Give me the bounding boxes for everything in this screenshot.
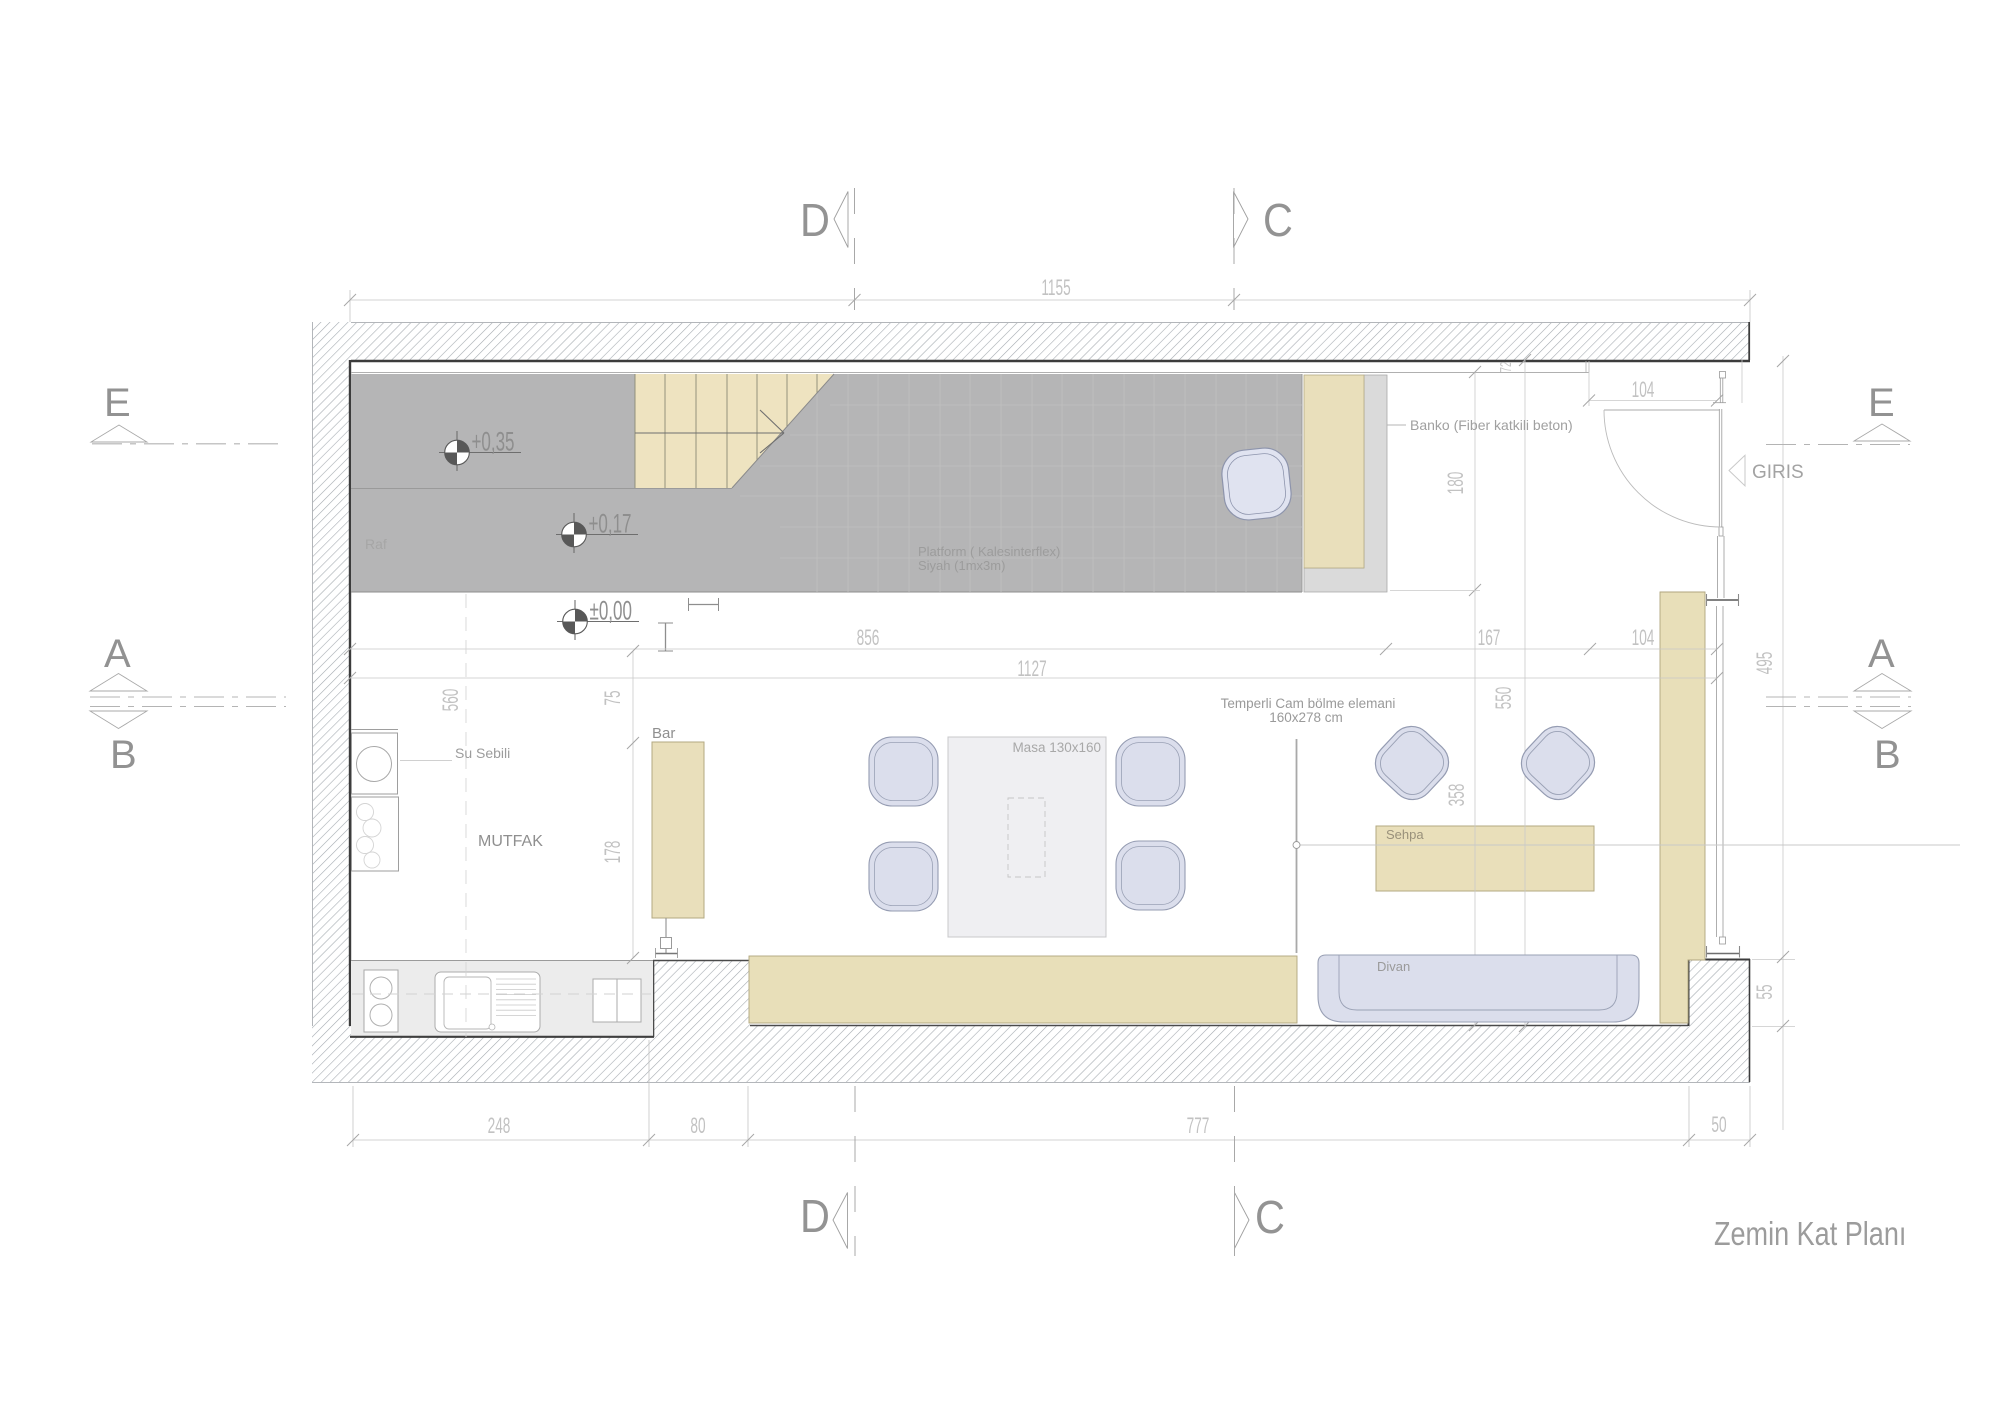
svg-text:Bar: Bar bbox=[652, 725, 675, 742]
svg-text:E: E bbox=[104, 381, 131, 425]
svg-text:104: 104 bbox=[1632, 377, 1655, 402]
svg-text:Zemin Kat Planı: Zemin Kat Planı bbox=[1714, 1217, 1906, 1253]
svg-text:75: 75 bbox=[600, 690, 625, 705]
svg-text:A: A bbox=[1868, 632, 1895, 676]
svg-text:160x278 cm: 160x278 cm bbox=[1269, 710, 1343, 725]
svg-text:560: 560 bbox=[438, 689, 463, 712]
svg-text:50: 50 bbox=[1711, 1112, 1726, 1137]
svg-text:C: C bbox=[1263, 195, 1293, 247]
svg-text:167: 167 bbox=[1478, 625, 1501, 650]
svg-text:80: 80 bbox=[690, 1113, 705, 1138]
svg-text:55: 55 bbox=[1752, 984, 1777, 999]
svg-text:C: C bbox=[1255, 1192, 1285, 1244]
svg-text:±0,00: ±0,00 bbox=[590, 596, 632, 626]
svg-text:Masa 130x160: Masa 130x160 bbox=[1012, 740, 1101, 755]
svg-text:777: 777 bbox=[1187, 1113, 1210, 1138]
svg-text:495: 495 bbox=[1752, 652, 1777, 675]
svg-text:E: E bbox=[1868, 381, 1895, 425]
svg-text:856: 856 bbox=[857, 625, 880, 650]
svg-text:104: 104 bbox=[1632, 625, 1655, 650]
svg-text:Platform ( Kalesinterflex): Platform ( Kalesinterflex) bbox=[918, 544, 1060, 559]
svg-text:358: 358 bbox=[1444, 784, 1469, 807]
svg-text:D: D bbox=[800, 195, 830, 247]
svg-text:550: 550 bbox=[1491, 687, 1516, 710]
svg-text:A: A bbox=[104, 632, 131, 676]
svg-text:Temperli Cam bölme elemani: Temperli Cam bölme elemani bbox=[1221, 696, 1396, 711]
svg-text:+0,35: +0,35 bbox=[472, 427, 515, 457]
svg-text:Sehpa: Sehpa bbox=[1386, 827, 1424, 842]
svg-text:B: B bbox=[110, 733, 137, 777]
svg-text:72: 72 bbox=[1497, 361, 1515, 372]
svg-text:178: 178 bbox=[600, 841, 625, 864]
svg-text:248: 248 bbox=[488, 1113, 511, 1138]
svg-text:Siyah (1mx3m): Siyah (1mx3m) bbox=[918, 558, 1005, 573]
svg-text:Divan: Divan bbox=[1377, 959, 1410, 974]
svg-text:1155: 1155 bbox=[1041, 275, 1070, 300]
svg-text:Banko (Fiber katkili beton): Banko (Fiber katkili beton) bbox=[1410, 417, 1573, 433]
svg-text:Su Sebili: Su Sebili bbox=[455, 745, 510, 761]
svg-text:GIRIS: GIRIS bbox=[1752, 462, 1804, 483]
svg-text:+0,17: +0,17 bbox=[589, 509, 632, 539]
svg-text:B: B bbox=[1874, 733, 1901, 777]
svg-text:D: D bbox=[800, 1191, 830, 1243]
svg-text:1127: 1127 bbox=[1017, 656, 1046, 681]
svg-text:MUTFAK: MUTFAK bbox=[478, 833, 543, 850]
svg-text:180: 180 bbox=[1443, 472, 1468, 495]
svg-text:Raf: Raf bbox=[365, 536, 387, 552]
